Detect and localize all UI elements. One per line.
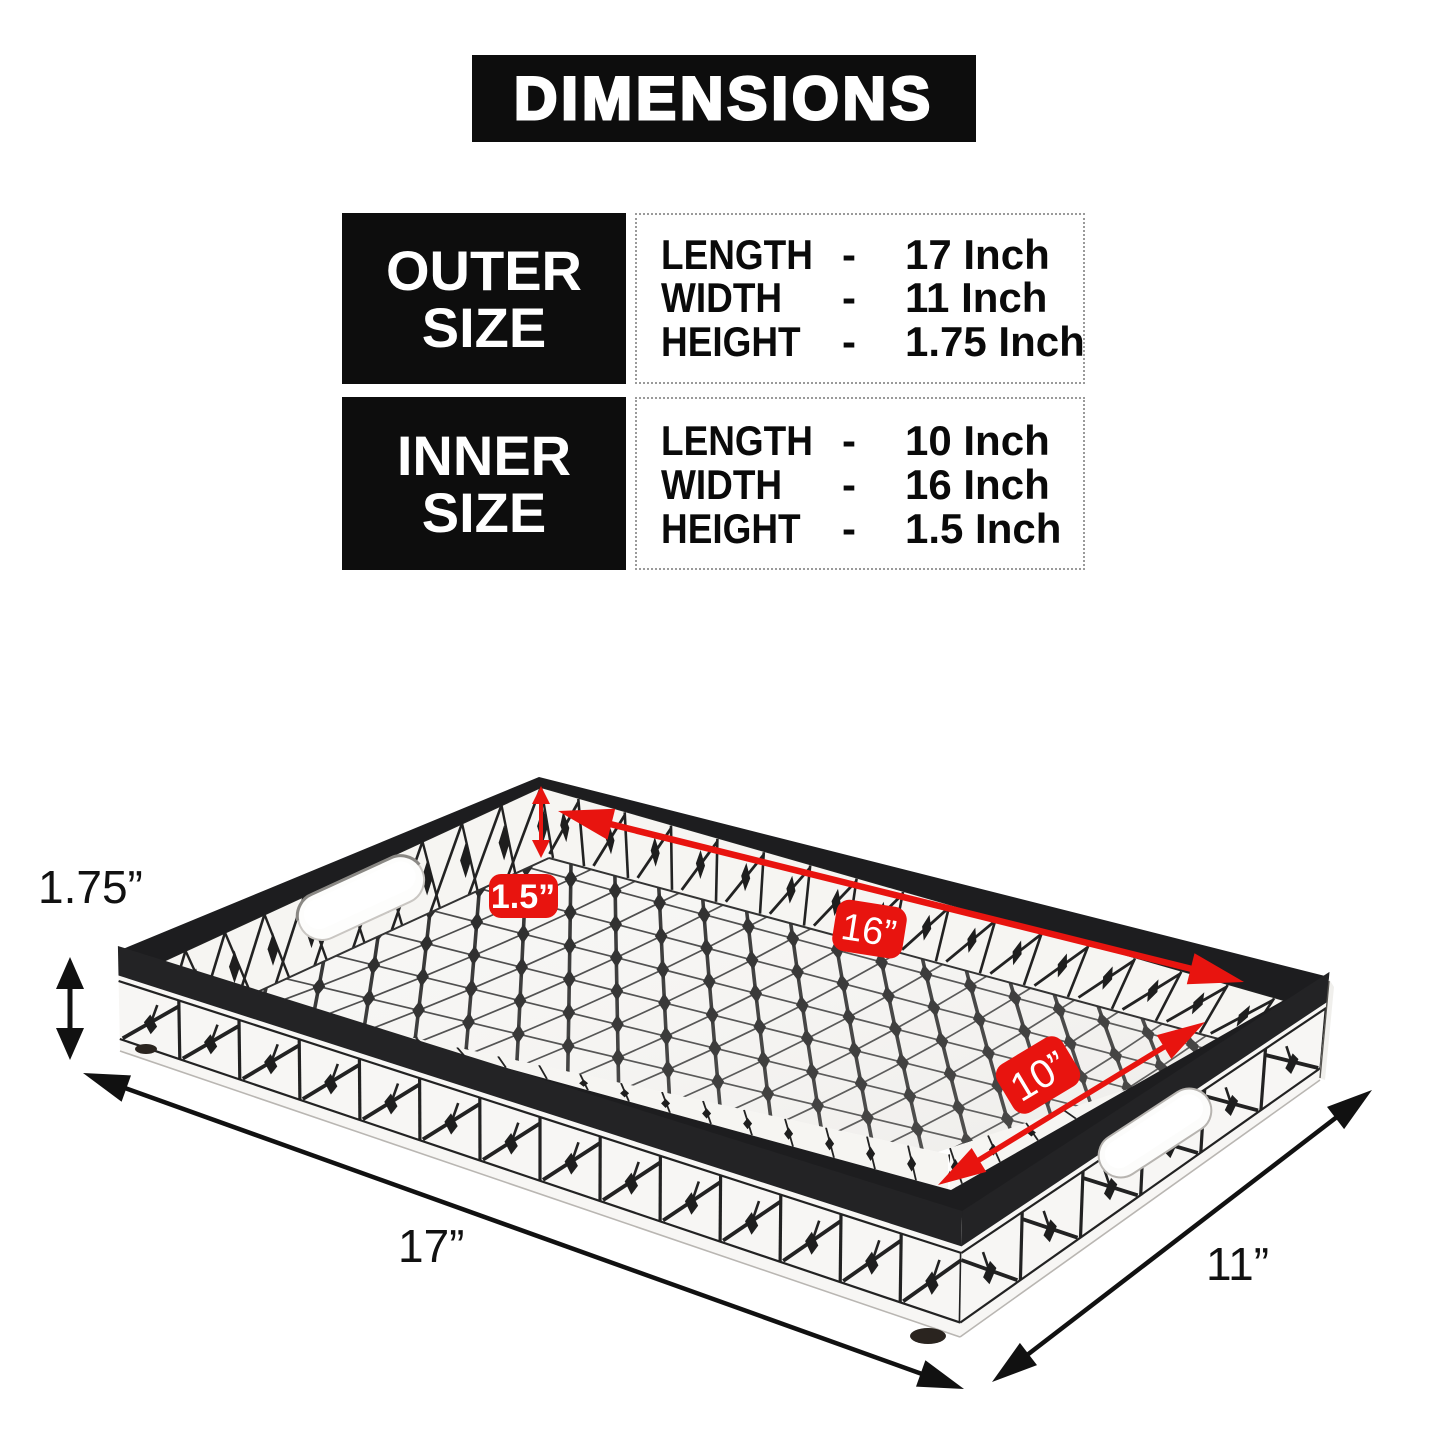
svg-text:1.75”: 1.75” [38,861,143,913]
svg-text:16”: 16” [838,906,899,956]
svg-text:11”: 11” [1206,1238,1269,1290]
svg-text:1.5”: 1.5” [491,878,555,916]
svg-text:17”: 17” [398,1220,464,1272]
